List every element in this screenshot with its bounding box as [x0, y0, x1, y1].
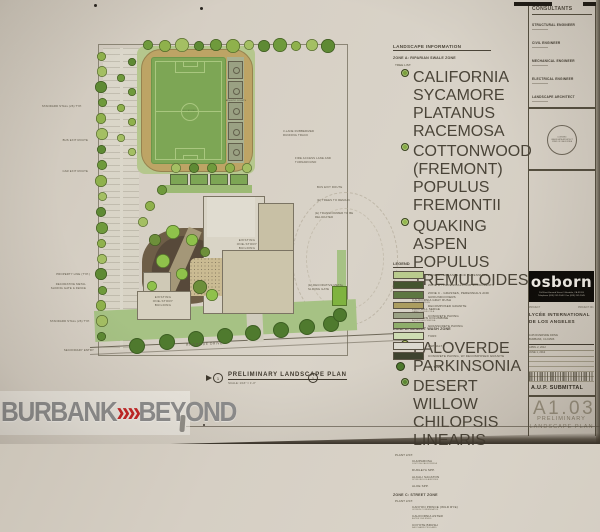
annotation: PROPERTY LINE (TYP.) — [48, 273, 90, 277]
photo-edge — [596, 0, 600, 444]
board-edge-line — [186, 426, 600, 427]
legend-item: ASPHALT — [393, 342, 508, 350]
tree-list-item: CALIFORNIA SYCAMOREPLATANUS RACEMOSA — [401, 69, 497, 141]
legend-item: GRASSCRETE PAVING — [393, 322, 508, 330]
tree-symbol-icon — [401, 218, 409, 226]
detail-callout-circle: 1 — [308, 373, 318, 383]
consultant-entry: LANDSCAPE ARCHITECT — [532, 95, 592, 102]
chevron-icon: » — [127, 396, 138, 427]
titleblock-divider — [529, 395, 595, 397]
consultants-heading: CONSULTANTS — [532, 6, 592, 15]
consultants-block: CONSULTANTS STRUCTURAL ENGINEERCIVIL ENG… — [532, 6, 592, 113]
tree-symbol — [138, 217, 148, 227]
tree-symbol — [97, 66, 108, 77]
soccer-field-label: SOCCER FIELD — [182, 110, 197, 112]
plant-list-item: ALKALI SACATONSPOROBOLUS AIROIDES — [412, 475, 497, 481]
legend-item: DECOMPOSED GRANITE — [393, 302, 508, 310]
legend-swatch — [393, 312, 424, 320]
tree-symbol — [117, 104, 125, 112]
tree-symbol — [206, 289, 218, 301]
legend-item: ZONE C - GRASSES, PERENNIALS AND GROUNDC… — [393, 291, 508, 299]
tree-symbol — [200, 247, 210, 257]
tree-symbol — [128, 58, 136, 66]
soccer-field: SOCCER FIELD — [151, 57, 226, 164]
tree-symbol — [98, 98, 107, 107]
landscape-information-heading: LANDSCAPE INFORMATION — [393, 44, 491, 51]
legend-swatch — [393, 332, 424, 340]
legend-item: TURF — [393, 332, 508, 340]
tree-symbol-icon — [401, 69, 409, 77]
legend-heading: LEGEND — [393, 261, 423, 268]
tree-list-item: COTTONWOOD (FREMONT)POPULUS FREMONTII — [401, 143, 497, 215]
annotation: BUS EXIT ROUTE — [317, 186, 357, 190]
titleblock-divider — [529, 169, 595, 171]
tree-symbol — [160, 335, 174, 349]
legend-item: CONCRETE PAVING, W/ DECOMPOSED GRANITE — [393, 352, 508, 360]
drawing-title: PRELIMINARY LANDSCAPE PLAN SCALE: 1/16" … — [228, 372, 347, 385]
detail-callout-marker: 1 — [206, 373, 223, 383]
tree-symbol — [321, 39, 335, 53]
firm-logo-block: osborn 104 East Harvard Street / Glendal… — [529, 271, 594, 302]
plant-list-item: COYOTE BRUSHBACCHARIS PILULARIS — [412, 523, 497, 529]
tree-symbol-icon — [401, 143, 409, 151]
annotation: FIRE ACCESS LANE AND TURNAROUND — [295, 157, 335, 164]
annotation: (E) TREES TO REMAIN — [317, 199, 357, 203]
tree-symbol — [156, 254, 170, 268]
photo-edge — [170, 433, 600, 444]
legend-item: (E) TREE — [393, 362, 508, 371]
annotation: (E) DECORATIVE METAL SLIDING GATE — [308, 284, 348, 291]
annotation: BUS EXIT ROUTE — [46, 139, 88, 143]
annotation: SECONDARY ENTRY — [52, 349, 94, 353]
tree-symbol — [258, 40, 270, 52]
tree-symbol — [246, 326, 260, 340]
tree-symbol — [143, 40, 153, 50]
annotation: DECORATIVE METAL SLIDING GATE & FENCE — [44, 283, 86, 290]
existing-building-main-label: EXISTING ONE-STORY BUILDING — [234, 238, 260, 250]
plant-list-item: CHUPAROSAJUSTICIA CALIFORNICA — [412, 459, 497, 465]
tree-symbol — [166, 225, 180, 239]
legend-swatch — [393, 281, 424, 289]
firm-address-line2: Telephone (818) 242-2040 / Fax (818) 242… — [538, 295, 585, 298]
consultant-entry: STRUCTURAL ENGINEER — [532, 23, 592, 30]
tree-symbol — [157, 185, 167, 195]
landscape-architect-stamp: LICENSED LANDSCAPE ARCHITECT STATE OF CA… — [547, 125, 577, 155]
tree-symbol — [207, 163, 217, 173]
tree-symbol — [97, 239, 106, 248]
tree-symbol — [291, 41, 301, 51]
tree-symbol — [97, 332, 106, 341]
tree-symbol — [306, 39, 318, 51]
annotation: CAR EXIT ROUTE — [46, 170, 88, 174]
legend-item: ZONE A - GRASSES AND PERENNIALS — [393, 271, 508, 279]
list-label: PLANT LIST: — [395, 453, 497, 457]
tree-symbol-icon — [396, 362, 405, 371]
plant-list-item: CALIFORNIA ASTERASTER CHILENSIS — [412, 514, 497, 520]
tree-symbol — [145, 201, 155, 211]
tree-symbol — [130, 339, 144, 353]
legend-swatch — [393, 352, 424, 360]
list-label: PLANT LIST: — [395, 499, 497, 503]
athletic-courts — [227, 57, 244, 163]
tree-symbol — [96, 300, 107, 311]
legend-swatch — [393, 342, 424, 350]
tree-symbol — [117, 134, 125, 142]
tree-symbol — [97, 145, 106, 154]
callout-triangle-icon — [206, 375, 212, 381]
consultant-entry: CIVIL ENGINEER — [532, 41, 592, 48]
legend-item: CONCRETE PAVING — [393, 312, 508, 320]
tree-symbol-icon — [401, 378, 409, 386]
tree-symbol — [95, 175, 107, 187]
tree-symbol — [128, 118, 136, 126]
planting-strip — [160, 185, 252, 193]
zone-title: ZONE C: STREET ZONE — [393, 493, 497, 497]
tree-symbol — [175, 38, 189, 52]
consultant-entry: ELECTRICAL ENGINEER — [532, 77, 592, 84]
tree-symbol — [171, 163, 181, 173]
consultant-entry: MECHANICAL ENGINEER — [532, 59, 592, 66]
tree-symbol — [194, 41, 204, 51]
existing-building-wing — [222, 250, 294, 314]
plant-list-item: DUDLEYA SPP. — [412, 468, 497, 472]
project-name: LYCÉE INTERNATIONAL DE LOS ANGELES — [529, 312, 594, 326]
chevron-icon: » — [116, 396, 127, 427]
tree-symbol — [147, 281, 157, 291]
barcode-strip — [529, 372, 594, 381]
planter — [170, 174, 188, 185]
tree-symbol — [334, 309, 346, 321]
planter — [190, 174, 208, 185]
photo-of-landscape-plan-board: { "watermark": { "left": "BURBANK", "che… — [0, 0, 600, 444]
legend-swatch — [393, 271, 424, 279]
pin-dot — [94, 4, 97, 7]
legend-swatch — [393, 322, 424, 330]
athletic-courts-label: ATHLETIC COURTS — [225, 100, 247, 103]
drawing-title-text: PRELIMINARY LANDSCAPE PLAN — [228, 372, 347, 380]
tree-symbol — [225, 163, 235, 173]
tree-symbol — [300, 320, 314, 334]
tree-symbol — [149, 234, 161, 246]
legend-swatch — [393, 291, 424, 299]
tree-symbol — [274, 323, 288, 337]
list-label: TREE LIST: — [395, 63, 497, 67]
drawing-scale: SCALE: 1/16" = 1'-0" — [228, 381, 347, 385]
plant-list-item: ALOE SPP. — [412, 484, 497, 488]
watermark-logo: BURBANK»»BEYOND — [1, 396, 236, 428]
planter — [210, 174, 228, 185]
tree-symbol — [128, 148, 136, 156]
pin-dot — [200, 7, 203, 10]
tree-symbol — [273, 38, 287, 52]
tree-symbol — [96, 222, 108, 234]
firm-logo: osborn — [531, 275, 592, 290]
plant-list-item: CANYON PRINCE (WILD RYE)LEYMUS CONDENSAT… — [412, 505, 497, 511]
tree-symbol — [189, 163, 199, 173]
tree-symbol — [226, 39, 240, 53]
tree-symbol — [244, 40, 254, 50]
tree-symbol — [97, 52, 106, 61]
tree-symbol — [176, 268, 188, 280]
site-address: 1105 RIVERSIDE DRIVE BURBANK, CA 91506 — [529, 334, 594, 341]
tree-symbol — [98, 192, 107, 201]
tree-symbol — [242, 163, 252, 173]
annotation: STANDARD STALL (26) TYP. — [40, 105, 82, 109]
tree-symbol — [193, 280, 207, 294]
submittal-label: A.U.P. SUBMITTAL — [531, 385, 583, 391]
tree-symbol — [96, 113, 107, 124]
tree-symbol — [98, 286, 107, 295]
existing-building-small-label: EXISTING ONE-STORY BUILDING — [150, 295, 176, 307]
project-label-row: PROJECT PROJECT NO. — [529, 306, 594, 309]
planter — [230, 174, 248, 185]
zone-title: ZONE A: RIPARIAN SWALE ZONE — [393, 56, 497, 60]
annotation: STANDARD STALL (26) TYP. — [48, 320, 90, 324]
legend-item: ZONE B - PERENNIALS AND SUCCULENTS — [393, 281, 508, 289]
tree-symbol — [186, 234, 198, 246]
legend-swatch — [393, 302, 424, 310]
legend-panel: LEGEND ZONE A - GRASSES AND PERENNIALSZO… — [393, 261, 508, 374]
annotation: (E) TRANSFORMER TO BE RELOCATED — [315, 212, 355, 219]
sheet-title: PRELIMINARY LANDSCAPE PLAN — [529, 416, 594, 431]
tree-symbol — [128, 88, 136, 96]
annotation: 3-LANE RUBBERIZED RUNNING TRACK — [283, 130, 323, 137]
tree-symbol — [117, 74, 125, 82]
tree-symbol — [210, 39, 222, 51]
tree-symbol — [159, 40, 171, 52]
